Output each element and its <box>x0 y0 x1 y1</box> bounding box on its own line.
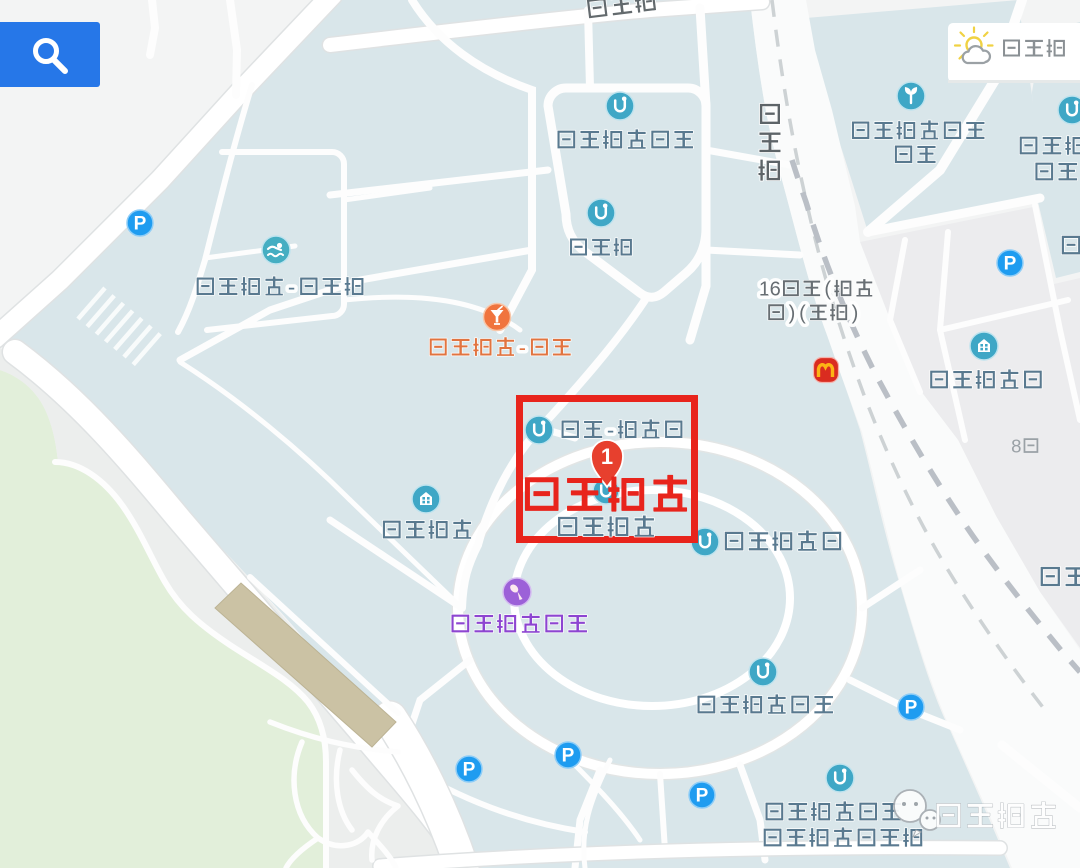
svg-text:(: ( <box>799 303 806 325</box>
svg-text:P: P <box>905 698 918 719</box>
svg-text:1: 1 <box>601 444 613 469</box>
svg-text:P: P <box>562 746 575 767</box>
svg-text:P: P <box>1004 254 1017 275</box>
svg-text:8: 8 <box>1011 435 1021 456</box>
svg-text:6: 6 <box>770 279 781 301</box>
svg-text:P: P <box>134 214 147 235</box>
svg-text:-: - <box>288 274 295 299</box>
svg-text:1: 1 <box>759 279 770 301</box>
svg-text:-: - <box>607 417 614 442</box>
svg-text:): ) <box>852 303 859 325</box>
svg-text:-: - <box>519 335 526 360</box>
svg-text:): ) <box>789 303 796 325</box>
svg-text:P: P <box>696 786 709 807</box>
svg-text:(: ( <box>824 279 831 301</box>
svg-text:P: P <box>463 760 476 781</box>
